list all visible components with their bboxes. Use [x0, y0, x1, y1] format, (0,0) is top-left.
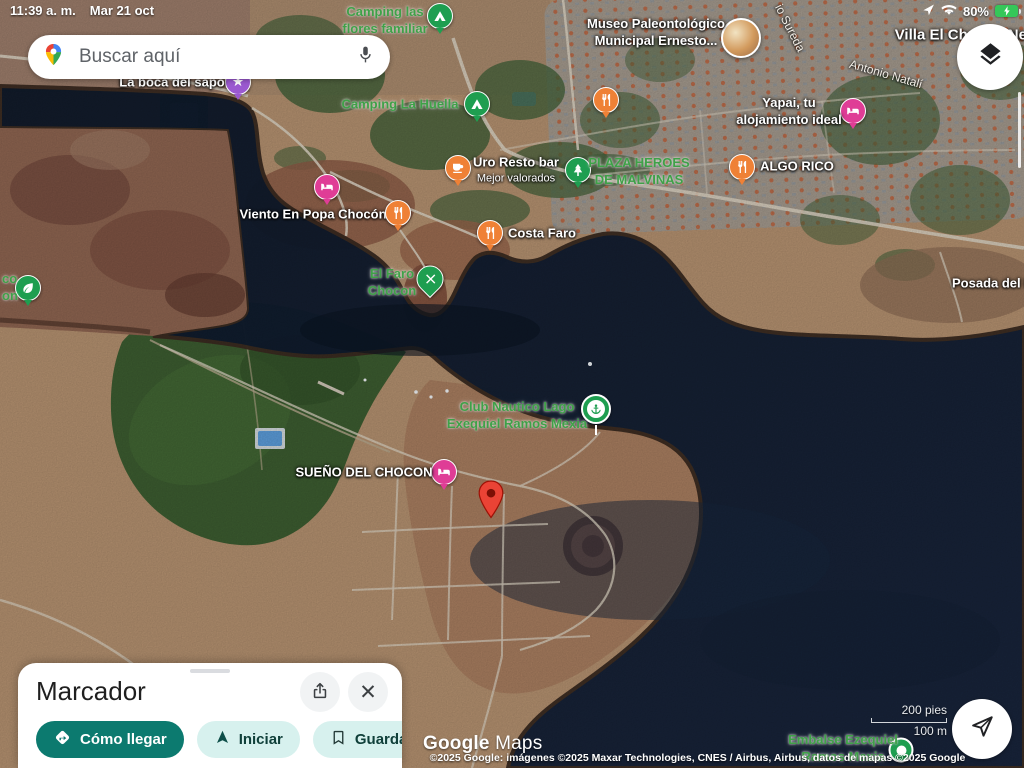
location-arrow-icon — [922, 3, 935, 19]
restaurant-icon[interactable] — [385, 200, 411, 226]
status-bar-left: 11:39 a. m. Mar 21 oct — [10, 3, 154, 18]
place-bottom-sheet: Marcador ✕ Cómo llegar Iniciar — [18, 663, 402, 768]
sheet-drag-handle[interactable] — [190, 669, 230, 673]
poi-sueno-del-chocon: SUEÑO DEL CHOCON — [0, 0, 1024, 768]
date: Mar 21 oct — [90, 3, 154, 18]
poi-restaurant-pin-2 — [0, 0, 1024, 768]
google-maps-app: Camping lasflores familiarMuseo Paleonto… — [0, 0, 1024, 768]
poi-truncated-left: coon — [0, 0, 1024, 768]
leaf-icon[interactable] — [15, 275, 41, 301]
cafe-icon[interactable] — [445, 155, 471, 181]
start-navigation-button[interactable]: Iniciar — [197, 721, 300, 758]
place-title: Marcador — [36, 676, 146, 707]
poi-club-nautico-label[interactable]: Club Nautico LagoExequiel Ramos Mexia — [447, 399, 587, 433]
poi-camping-las-flores: Camping lasflores familiar — [0, 0, 1024, 768]
restaurant-icon[interactable] — [593, 87, 619, 113]
share-icon — [310, 681, 330, 704]
poi-posada-label[interactable]: Posada del D... — [952, 276, 1024, 293]
poi-viento-en-popa: Viento En Popa Chocón — [0, 0, 1024, 768]
bed-icon[interactable] — [314, 174, 340, 200]
clock: 11:39 a. m. — [10, 3, 76, 18]
poi-layer: Camping lasflores familiarMuseo Paleonto… — [0, 0, 1024, 768]
dropped-pin-marker — [0, 0, 1024, 768]
poi-villa-el-chocon: Villa El Chocon Neuq — [0, 0, 1024, 768]
tree-icon[interactable] — [565, 157, 591, 183]
poi-embalse-ezequiel: Embalse EzequielRamos Mexia — [0, 0, 1024, 768]
wifi-icon — [941, 4, 957, 19]
directions-button[interactable]: Cómo llegar — [36, 721, 184, 758]
share-button[interactable] — [300, 672, 340, 712]
poi-camping-la-huella-label[interactable]: Camping La Huella — [341, 97, 458, 114]
close-icon: ✕ — [359, 680, 377, 705]
navigate-icon — [214, 729, 231, 750]
photo-thumbnail[interactable] — [721, 18, 761, 58]
watermark-maps: Maps — [495, 733, 542, 754]
poi-sueno-del-chocon-label[interactable]: SUEÑO DEL CHOCON — [296, 465, 433, 482]
battery-charging-icon — [995, 5, 1018, 17]
google-maps-pin-logo — [42, 43, 65, 71]
restaurant-icon[interactable] — [729, 154, 755, 180]
scale-imperial: 200 pies — [871, 703, 947, 717]
poi-algo-rico-label[interactable]: ALGO RICO — [760, 159, 834, 176]
poi-posada: Posada del D... — [0, 0, 1024, 768]
tent-icon[interactable] — [464, 91, 490, 117]
bed-icon[interactable] — [431, 459, 457, 485]
poi-costa-faro-label[interactable]: Costa Faro — [508, 226, 576, 243]
layers-icon — [977, 41, 1004, 73]
restaurant-icon[interactable] — [477, 220, 503, 246]
save-button[interactable]: Guardar — [313, 721, 402, 758]
poi-camping-la-huella: Camping La Huella — [0, 0, 1024, 768]
send-location-button[interactable] — [952, 699, 1012, 759]
bookmark-icon — [330, 729, 347, 750]
poi-club-nautico: Club Nautico LagoExequiel Ramos Mexia — [0, 0, 1024, 768]
red-marker-icon[interactable] — [478, 480, 505, 524]
tent-icon[interactable] — [427, 3, 453, 29]
poi-museo-paleontologico-label[interactable]: Museo PaleontológicoMunicipal Ernesto... — [587, 16, 725, 50]
status-bar-right: 80% — [922, 3, 1018, 19]
map-copyright: ©2025 Google: imágenes ©2025 Maxar Techn… — [405, 752, 990, 764]
poi-restaurant-pin-1 — [0, 0, 1024, 768]
mic-icon[interactable] — [355, 44, 376, 70]
street-label-1: Antonio Natalí — [848, 57, 924, 91]
street-label-0: io Sureda — [772, 2, 808, 54]
poi-uro-resto-bar: Uro Resto barMejor valorados — [0, 0, 1024, 768]
search-bar[interactable] — [28, 35, 390, 79]
poi-yapai-alojamiento-label[interactable]: Yapai, tualojamiento ideal — [736, 95, 841, 129]
close-button[interactable]: ✕ — [348, 672, 388, 712]
directions-icon — [53, 728, 72, 751]
poi-camping-las-flores-label[interactable]: Camping lasflores familiar — [342, 4, 427, 38]
send-icon — [969, 714, 995, 745]
scroll-indicator — [1018, 92, 1021, 168]
poi-museo-paleontologico: Museo PaleontológicoMunicipal Ernesto... — [0, 0, 1024, 768]
action-chips-row: Cómo llegar Iniciar Guardar — [36, 721, 402, 758]
scale-bar — [871, 718, 947, 723]
scale-metric: 100 m — [871, 724, 947, 738]
pick-icon[interactable] — [417, 266, 444, 293]
poi-yapai-alojamiento: Yapai, tualojamiento ideal — [0, 0, 1024, 768]
map-scale: 200 pies 100 m — [871, 703, 947, 738]
bed-icon[interactable] — [840, 98, 866, 124]
poi-la-boca-del-sapo: La boca del sapo — [0, 0, 1024, 768]
layers-button[interactable] — [957, 24, 1023, 90]
poi-plaza-heroes-malvinas: PLAZA HEROESDE MALVINAS — [0, 0, 1024, 768]
poi-uro-resto-bar-label[interactable]: Uro Resto barMejor valorados — [473, 154, 559, 185]
poi-viento-en-popa-label[interactable]: Viento En Popa Chocón — [239, 207, 386, 224]
watermark-google: Google — [423, 733, 490, 754]
poi-costa-faro: Costa Faro — [0, 0, 1024, 768]
save-label: Guardar — [355, 731, 402, 748]
poi-el-faro-chocon: El FaroChocon — [0, 0, 1024, 768]
battery-percent: 80% — [963, 4, 989, 19]
directions-label: Cómo llegar — [80, 731, 167, 748]
search-input[interactable] — [77, 45, 343, 69]
poi-algo-rico: ALGO RICO — [0, 0, 1024, 768]
poi-truncated-left-label[interactable]: coon — [2, 271, 18, 305]
poi-el-faro-chocon-label[interactable]: El FaroChocon — [368, 266, 416, 300]
poi-plaza-heroes-malvinas-label[interactable]: PLAZA HEROESDE MALVINAS — [588, 155, 689, 189]
start-label: Iniciar — [239, 731, 283, 748]
